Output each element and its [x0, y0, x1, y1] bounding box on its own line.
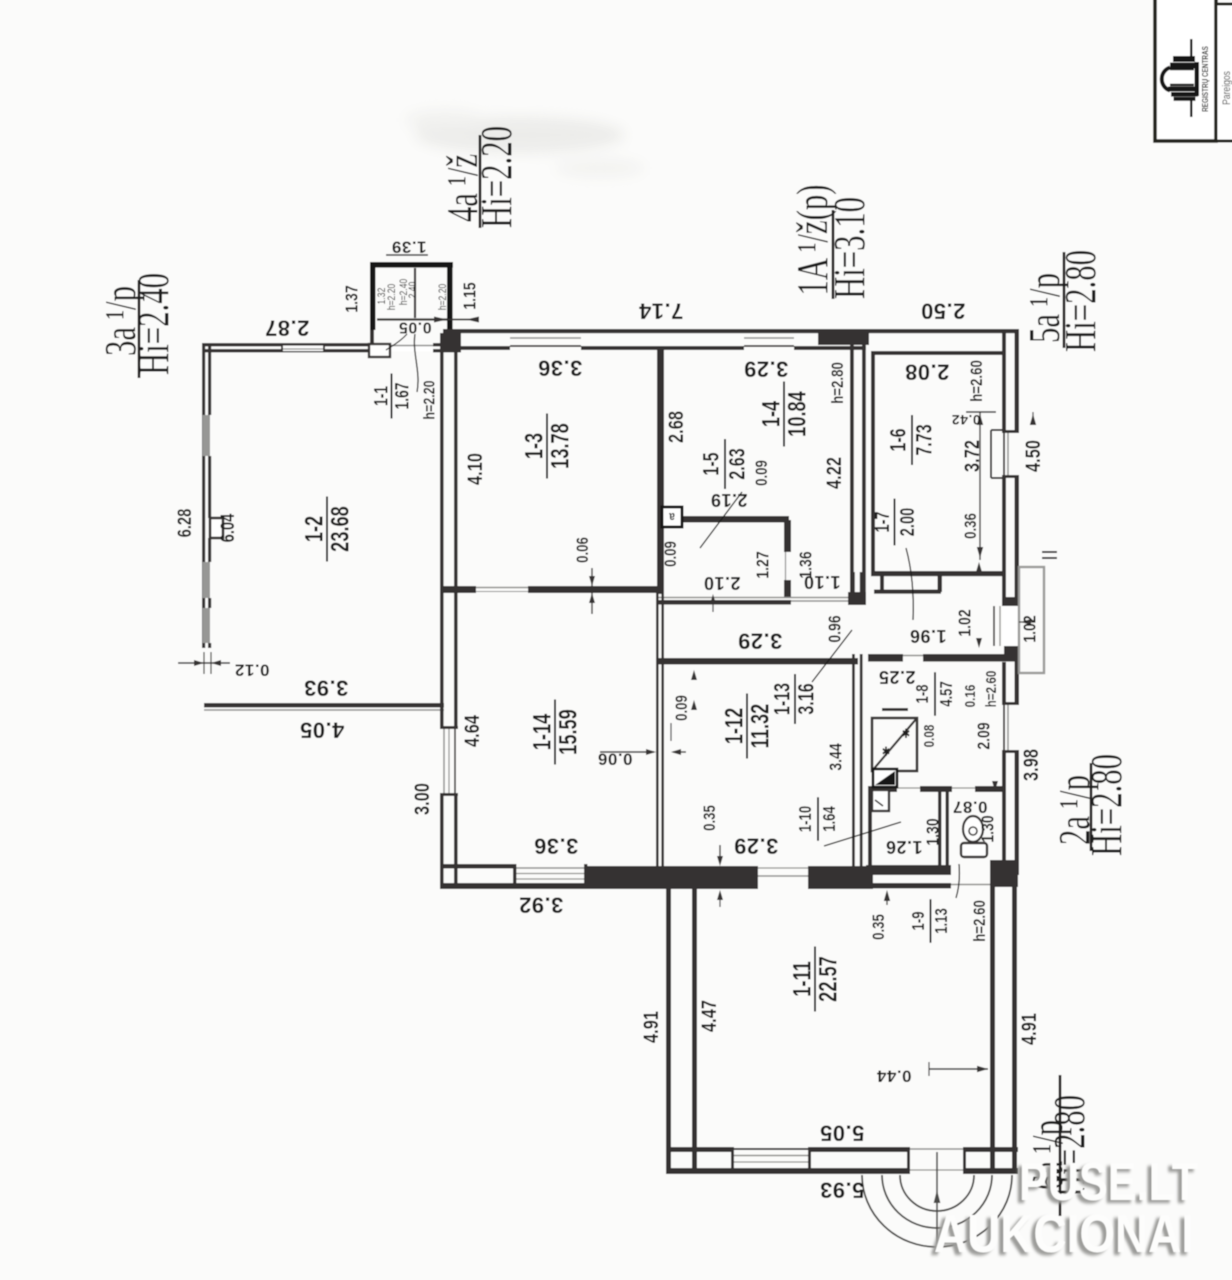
svg-text:2.68: 2.68 — [664, 411, 687, 443]
svg-text:3.93: 3.93 — [304, 676, 349, 701]
svg-text:2.50: 2.50 — [921, 299, 966, 324]
svg-text:h=2.20: h=2.20 — [437, 283, 449, 310]
svg-text:1.27: 1.27 — [753, 551, 773, 578]
svg-text:1-10: 1-10 — [796, 806, 815, 832]
svg-text:11.32: 11.32 — [746, 704, 775, 749]
svg-text:1.64: 1.64 — [820, 806, 839, 832]
svg-text:AUKCIONAI: AUKCIONAI — [934, 1204, 1194, 1264]
svg-text:0.09: 0.09 — [673, 695, 692, 721]
svg-text:0.08: 0.08 — [921, 724, 938, 747]
svg-text:4.91: 4.91 — [639, 1011, 662, 1043]
svg-text:1-8: 1-8 — [913, 684, 932, 703]
svg-text:1-7: 1-7 — [871, 511, 894, 532]
svg-text:3.98: 3.98 — [1019, 749, 1042, 781]
svg-text:2.19: 2.19 — [710, 490, 747, 510]
svg-text:1.67: 1.67 — [391, 383, 413, 410]
svg-text:3.16: 3.16 — [795, 683, 819, 714]
svg-text:1.02: 1.02 — [1020, 615, 1040, 642]
svg-text:4.47: 4.47 — [697, 1000, 720, 1032]
svg-text:REGISTRŲ CENTRAS: REGISTRŲ CENTRAS — [1200, 46, 1210, 112]
svg-text:1.30: 1.30 — [923, 818, 943, 845]
svg-text:1.26: 1.26 — [885, 837, 922, 857]
svg-text:3.29: 3.29 — [744, 357, 789, 382]
svg-text:0.09: 0.09 — [662, 541, 681, 567]
svg-text:1.36: 1.36 — [796, 551, 816, 578]
svg-text:2.40: 2.40 — [407, 281, 419, 298]
svg-text:3.92: 3.92 — [519, 893, 564, 918]
svg-text:4.50: 4.50 — [1021, 440, 1044, 472]
svg-text:1-14: 1-14 — [528, 713, 557, 750]
svg-text:✱: ✱ — [902, 727, 911, 741]
svg-text:1-1: 1-1 — [370, 386, 392, 406]
svg-text:1-13: 1-13 — [771, 683, 795, 715]
svg-text:2.63: 2.63 — [726, 448, 750, 479]
svg-text:Hi=2.80: Hi=2.80 — [1057, 250, 1106, 352]
svg-text:3.36: 3.36 — [538, 356, 583, 381]
svg-text:0.42: 0.42 — [951, 412, 980, 428]
svg-text:4.22: 4.22 — [822, 457, 845, 489]
svg-text:Pareigos: Pareigos — [1221, 71, 1232, 105]
svg-text:4.10: 4.10 — [463, 453, 486, 485]
svg-text:0.36: 0.36 — [962, 513, 981, 539]
svg-text:1.96: 1.96 — [909, 626, 946, 646]
svg-text:10.84: 10.84 — [783, 390, 812, 436]
svg-text:1.02: 1.02 — [955, 609, 975, 636]
svg-text:2.10: 2.10 — [703, 573, 740, 593]
svg-text:0.09: 0.09 — [753, 460, 772, 486]
svg-text:1-5: 1-5 — [700, 452, 724, 475]
svg-text:1-2: 1-2 — [300, 516, 329, 542]
svg-text:1.37: 1.37 — [342, 285, 362, 312]
svg-text:0.16: 0.16 — [962, 685, 979, 708]
svg-text:1.39: 1.39 — [391, 238, 426, 257]
svg-text:Hi=2.20: Hi=2.20 — [473, 126, 522, 228]
svg-text:15.59: 15.59 — [554, 709, 583, 755]
svg-text:h=2.20: h=2.20 — [421, 380, 439, 419]
svg-text:Hi=2.80: Hi=2.80 — [1083, 754, 1132, 856]
svg-text:1.13: 1.13 — [932, 908, 951, 934]
svg-text:0.35: 0.35 — [701, 805, 720, 831]
svg-text:7.14: 7.14 — [638, 299, 683, 324]
svg-text:0.87: 0.87 — [952, 798, 987, 817]
svg-text:3.29: 3.29 — [734, 834, 779, 859]
svg-text:1-12: 1-12 — [720, 708, 749, 745]
svg-text:23.68: 23.68 — [326, 506, 355, 552]
svg-text:3.00: 3.00 — [410, 783, 433, 815]
svg-text:2.09: 2.09 — [974, 722, 994, 749]
svg-text:h=2.60: h=2.60 — [968, 360, 987, 402]
svg-text:6.28: 6.28 — [174, 509, 195, 538]
svg-text:Hi=3.10: Hi=3.10 — [826, 197, 875, 299]
svg-text:h=2.20: h=2.20 — [386, 283, 398, 310]
svg-text:0.06: 0.06 — [574, 537, 593, 563]
svg-text:h=2.60: h=2.60 — [971, 900, 990, 942]
svg-text:0.06: 0.06 — [597, 750, 632, 769]
svg-text:a: a — [669, 510, 675, 524]
svg-text:3.44: 3.44 — [826, 743, 846, 770]
svg-text:4.64: 4.64 — [460, 715, 483, 747]
svg-text:3.29: 3.29 — [738, 629, 783, 654]
svg-text:0.44: 0.44 — [876, 1067, 911, 1086]
svg-text:22.57: 22.57 — [814, 956, 843, 1002]
svg-text:0.35: 0.35 — [870, 914, 889, 940]
svg-text:5.05: 5.05 — [820, 1121, 865, 1146]
svg-text:13.78: 13.78 — [546, 423, 575, 469]
svg-text:4.05: 4.05 — [300, 718, 345, 743]
svg-text:Hi=2.40: Hi=2.40 — [130, 273, 179, 375]
svg-text:h=2.60: h=2.60 — [983, 671, 1000, 708]
svg-text:4.57: 4.57 — [937, 681, 956, 707]
svg-text:2.25: 2.25 — [878, 667, 915, 687]
svg-text:1-3: 1-3 — [520, 433, 549, 459]
svg-text:1-9: 1-9 — [909, 911, 928, 930]
svg-text:1.15: 1.15 — [460, 282, 480, 309]
svg-text:0.05: 0.05 — [398, 319, 431, 336]
svg-text:3.72: 3.72 — [960, 440, 983, 472]
svg-text:6.04: 6.04 — [217, 513, 238, 542]
svg-text:3.36: 3.36 — [534, 834, 579, 859]
svg-text:1-4: 1-4 — [757, 400, 786, 427]
svg-text:✱: ✱ — [882, 745, 891, 759]
svg-text:2.08: 2.08 — [905, 360, 950, 385]
svg-text:1-6: 1-6 — [887, 428, 911, 451]
svg-text:7.73: 7.73 — [913, 424, 937, 455]
svg-text:0.12: 0.12 — [234, 661, 269, 680]
svg-text:h=2.80: h=2.80 — [829, 362, 848, 404]
svg-text:0.96: 0.96 — [825, 615, 845, 642]
svg-text:2.00: 2.00 — [896, 508, 919, 537]
svg-text:2.87: 2.87 — [265, 316, 310, 341]
svg-text:1-11: 1-11 — [788, 961, 817, 997]
svg-text:5.93: 5.93 — [820, 1178, 865, 1203]
svg-text:1.30: 1.30 — [978, 815, 998, 842]
svg-text:4.91: 4.91 — [1017, 1013, 1040, 1045]
